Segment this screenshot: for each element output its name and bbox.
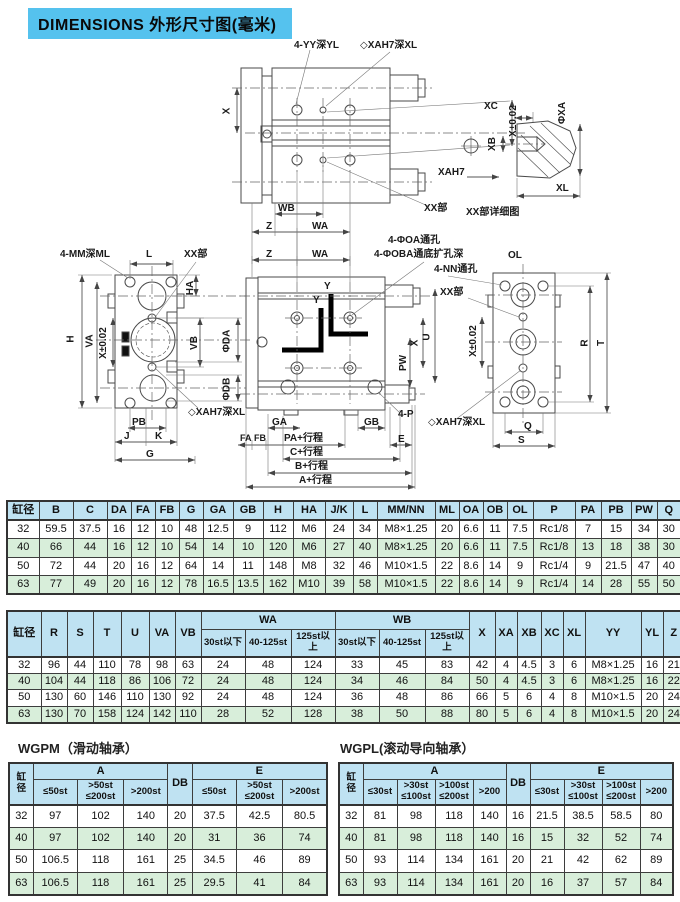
value-cell: 38	[631, 539, 657, 557]
col-header-group-e: E	[192, 763, 327, 780]
bore-cell: 32	[7, 657, 41, 674]
value-cell: 29.5	[192, 872, 236, 895]
value-cell: 39	[325, 575, 353, 594]
value-cell: 80	[640, 805, 673, 828]
value-cell: 118	[435, 828, 473, 850]
col-header-group-a: A	[363, 763, 506, 780]
value-cell: M6	[293, 539, 325, 557]
value-cell: 83	[425, 657, 469, 674]
value-cell: 32	[325, 557, 353, 575]
dim-label-xa: ΦXA	[558, 102, 568, 124]
value-cell: 78	[179, 575, 203, 594]
value-cell: 20	[641, 690, 663, 706]
value-cell: 28	[601, 575, 631, 594]
value-cell: 158	[93, 706, 121, 723]
value-cell: M8	[293, 557, 325, 575]
value-cell: 42	[564, 850, 602, 872]
value-cell: 6.6	[459, 520, 483, 539]
value-cell: 54	[179, 539, 203, 557]
value-cell: 64	[179, 557, 203, 575]
value-cell: 30	[657, 539, 680, 557]
value-cell: 20	[168, 805, 192, 828]
table-row: 4010444118861067224481243446845044.536M8…	[7, 674, 680, 690]
wgpm-title: WGPM（滑动轴承）	[18, 738, 138, 757]
value-cell: 7.5	[507, 520, 533, 539]
value-cell: 24	[201, 690, 245, 706]
value-cell: 34	[631, 520, 657, 539]
value-cell: 118	[77, 872, 123, 895]
value-cell: 11	[233, 557, 263, 575]
value-cell: 20	[506, 872, 530, 895]
dimension-drawing: 4-YY深YL ◇XAH7深XL X X±0.02 WB Z WA Z WA X…	[0, 36, 680, 498]
value-cell: 25	[168, 850, 192, 872]
value-cell: 16	[131, 575, 155, 594]
value-cell: 16	[506, 828, 530, 850]
col-header: DB	[506, 763, 530, 805]
value-cell: 45	[379, 657, 425, 674]
value-cell: 106.5	[33, 872, 77, 895]
table-header-row: 缸 径 A DB E	[339, 763, 673, 780]
col-header-group-e: E	[530, 763, 673, 780]
value-cell: 12	[131, 539, 155, 557]
section-label-y1: Y	[313, 296, 320, 306]
dim-label-mm: 4-MM深ML	[60, 250, 110, 260]
value-cell: 118	[435, 805, 473, 828]
dim-label-r: R	[581, 339, 591, 346]
col-header: S	[67, 611, 93, 657]
wgpl-table: 缸 径 A DB E ≤30st >30st ≤100st >100st ≤20…	[338, 762, 674, 896]
bore-cell: 50	[339, 850, 363, 872]
col-subheader: ≤30st	[363, 780, 397, 805]
value-cell: 134	[435, 872, 473, 895]
col-header: H	[263, 501, 293, 520]
value-cell: 66	[39, 539, 73, 557]
value-cell: 89	[640, 850, 673, 872]
value-cell: 46	[353, 557, 377, 575]
bore-cell: 63	[339, 872, 363, 895]
value-cell: 97	[33, 828, 77, 850]
col-subheader: ≤50st	[192, 780, 236, 805]
value-cell: M8×1.25	[377, 520, 435, 539]
value-cell: 161	[473, 850, 506, 872]
dim-label-xc: XC	[484, 102, 498, 112]
value-cell: 10	[155, 539, 179, 557]
value-cell: 4	[495, 674, 517, 690]
value-cell: 11	[483, 520, 507, 539]
value-cell: 84	[640, 872, 673, 895]
value-cell: 96	[41, 657, 67, 674]
value-cell: 3	[541, 674, 563, 690]
value-cell: 46	[379, 674, 425, 690]
value-cell: 47	[631, 557, 657, 575]
table-row: 406644161210541410120M62740M8×1.25206.61…	[7, 539, 680, 557]
value-cell: 6.6	[459, 539, 483, 557]
value-cell: 8	[563, 706, 585, 723]
table-row: 32971021402037.542.580.5	[9, 805, 327, 828]
bore-cell: 40	[339, 828, 363, 850]
dim-label-g: G	[146, 450, 154, 460]
value-cell: 130	[149, 690, 175, 706]
dim-label-xah7-left: ◇XAH7深XL	[188, 408, 245, 418]
col-header: YL	[641, 611, 663, 657]
dim-label-vb: VB	[190, 336, 200, 350]
value-cell: 124	[291, 657, 335, 674]
col-header: PB	[601, 501, 631, 520]
value-cell: 50	[657, 575, 680, 594]
value-cell: 142	[149, 706, 175, 723]
value-cell: 140	[473, 828, 506, 850]
value-cell: 24	[663, 690, 680, 706]
dim-label-q: Q	[524, 422, 532, 432]
col-header: 缸径	[7, 611, 41, 657]
table-row: 4081981181401615325274	[339, 828, 673, 850]
value-cell: 44	[67, 674, 93, 690]
table-row: 50931141341612021426289	[339, 850, 673, 872]
value-cell: 24	[201, 657, 245, 674]
value-cell: 16	[641, 674, 663, 690]
col-subheader: ≤30st	[530, 780, 564, 805]
dim-label-wa1: WA	[312, 222, 328, 232]
value-cell: 6	[517, 706, 541, 723]
value-cell: 140	[124, 828, 168, 850]
value-cell: 6	[517, 690, 541, 706]
value-cell: 77	[39, 575, 73, 594]
value-cell: 48	[245, 657, 291, 674]
value-cell: 44	[73, 557, 107, 575]
value-cell: 18	[601, 539, 631, 557]
value-cell: 114	[397, 850, 435, 872]
value-cell: 50	[379, 706, 425, 723]
value-cell: 41	[236, 872, 282, 895]
dim-label-x-top: X	[222, 108, 232, 115]
col-header: Q	[657, 501, 680, 520]
col-subheader: >200	[640, 780, 673, 805]
table-row: 5013060146110130922448124364886665648M10…	[7, 690, 680, 706]
value-cell: 27	[325, 539, 353, 557]
dim-label-s: S	[518, 436, 525, 446]
value-cell: 93	[363, 850, 397, 872]
value-cell: 130	[41, 706, 67, 723]
value-cell: 42	[469, 657, 495, 674]
bore-cell: 50	[7, 690, 41, 706]
value-cell: 37.5	[73, 520, 107, 539]
col-header: DB	[168, 763, 192, 805]
value-cell: 52	[245, 706, 291, 723]
bore-cell: 50	[9, 850, 33, 872]
col-header: P	[533, 501, 575, 520]
value-cell: 36	[236, 828, 282, 850]
value-cell: 70	[67, 706, 93, 723]
col-header: R	[41, 611, 67, 657]
dim-label-xah7-front: ◇XAH7深XL	[428, 418, 485, 428]
value-cell: 16	[107, 520, 131, 539]
dim-label-l: L	[146, 250, 152, 260]
col-header: PA	[575, 501, 601, 520]
value-cell: 44	[67, 657, 93, 674]
value-cell: 110	[121, 690, 149, 706]
dim-label-ha: HA	[186, 281, 196, 295]
value-cell: 4	[541, 706, 563, 723]
col-subheader: >200	[473, 780, 506, 805]
dim-label-va: VA	[86, 334, 96, 347]
value-cell: 13	[575, 539, 601, 557]
dim-label-fa: FA	[240, 434, 252, 443]
wgpl-title: WGPL(滚动导向轴承）	[340, 738, 474, 757]
col-header: ML	[435, 501, 459, 520]
value-cell: M6	[293, 520, 325, 539]
col-subheader: >200st	[283, 780, 327, 805]
page-title: DIMENSIONS 外形尺寸图(毫米)	[28, 8, 292, 39]
value-cell: 4.5	[517, 657, 541, 674]
dim-label-a-stroke: A+行程	[299, 476, 332, 486]
value-cell: 5	[495, 690, 517, 706]
col-header: YY	[585, 611, 641, 657]
bore-cell: 32	[339, 805, 363, 828]
value-cell: 72	[175, 674, 201, 690]
col-header: OA	[459, 501, 483, 520]
value-cell: M8×1.25	[377, 539, 435, 557]
value-cell: 162	[263, 575, 293, 594]
dim-label-xx-front: XX部	[440, 288, 463, 298]
col-header: L	[353, 501, 377, 520]
dim-label-nn: 4-NN通孔	[434, 265, 477, 275]
detail-caption: XX部详细图	[466, 208, 519, 218]
value-cell: 34.5	[192, 850, 236, 872]
value-cell: 10	[155, 520, 179, 539]
table-row: 63130701581241421102852128385088805648M1…	[7, 706, 680, 723]
value-cell: 55	[631, 575, 657, 594]
value-cell: 36	[335, 690, 379, 706]
value-cell: 78	[121, 657, 149, 674]
dim-label-oa: 4-ΦOA通孔	[388, 236, 440, 246]
value-cell: 16	[131, 557, 155, 575]
col-subheader: ≤50st	[33, 780, 77, 805]
col-header: 缸径	[7, 501, 39, 520]
value-cell: 81	[363, 828, 397, 850]
value-cell: 112	[263, 520, 293, 539]
technical-drawing	[0, 36, 680, 498]
value-cell: 49	[73, 575, 107, 594]
value-cell: 98	[397, 828, 435, 850]
value-cell: 44	[73, 539, 107, 557]
value-cell: 66	[469, 690, 495, 706]
dim-label-ol: OL	[508, 251, 522, 261]
value-cell: 33	[335, 657, 379, 674]
value-cell: 14	[575, 575, 601, 594]
value-cell: 25	[168, 872, 192, 895]
value-cell: M10×1.5	[585, 690, 641, 706]
value-cell: 9	[233, 520, 263, 539]
dim-label-pw: PW	[399, 355, 409, 371]
col-subheader: 125st以上	[425, 630, 469, 657]
value-cell: 80.5	[283, 805, 327, 828]
bore-cell: 63	[7, 575, 39, 594]
value-cell: 9	[507, 557, 533, 575]
table-row: 3259.537.51612104812.59112M62434M8×1.252…	[7, 520, 680, 539]
value-cell: 34	[335, 674, 379, 690]
value-cell: 48	[179, 520, 203, 539]
value-cell: 48	[245, 674, 291, 690]
dim-label-xx-left: XX部	[184, 250, 207, 260]
bore-cell: 32	[9, 805, 33, 828]
value-cell: 4	[541, 690, 563, 706]
value-cell: 58	[353, 575, 377, 594]
table-header-row: 缸径 R S T U VA VB WA WB X XA XB XC XL YY …	[7, 611, 680, 630]
value-cell: 74	[283, 828, 327, 850]
col-header: XB	[517, 611, 541, 657]
value-cell: M10	[293, 575, 325, 594]
value-cell: 114	[397, 872, 435, 895]
col-header: XC	[541, 611, 563, 657]
dim-label-xtol-right: X±0.02	[469, 325, 479, 357]
dim-label-x-front: X	[410, 340, 420, 347]
dim-label-da: ΦDA	[222, 330, 232, 353]
value-cell: 20	[506, 850, 530, 872]
value-cell: 31	[192, 828, 236, 850]
col-header: XL	[563, 611, 585, 657]
value-cell: 118	[93, 674, 121, 690]
value-cell: 161	[473, 872, 506, 895]
wgpm-table: 缸 径 A DB E ≤50st >50st ≤200st >200st ≤50…	[8, 762, 328, 896]
value-cell: 93	[363, 872, 397, 895]
value-cell: 38	[335, 706, 379, 723]
value-cell: 20	[435, 539, 459, 557]
value-cell: 42.5	[236, 805, 282, 828]
value-cell: Rc1/4	[533, 557, 575, 575]
col-subheader: 40-125st	[379, 630, 425, 657]
value-cell: Rc1/4	[533, 575, 575, 594]
col-header: C	[73, 501, 107, 520]
value-cell: 8.6	[459, 557, 483, 575]
dim-label-fb: FB	[254, 434, 266, 443]
bore-cell: 50	[7, 557, 39, 575]
dim-label-yy: 4-YY深YL	[294, 41, 339, 51]
value-cell: 7.5	[507, 539, 533, 557]
value-cell: 16	[506, 805, 530, 828]
dim-label-h: H	[67, 335, 77, 342]
value-cell: 102	[77, 828, 123, 850]
dim-label-u: U	[423, 333, 433, 340]
value-cell: 98	[397, 805, 435, 828]
col-header: 缸 径	[9, 763, 33, 805]
value-cell: M8×1.25	[585, 657, 641, 674]
bore-cell: 40	[7, 674, 41, 690]
value-cell: 22	[435, 575, 459, 594]
value-cell: 50	[469, 674, 495, 690]
value-cell: 128	[291, 706, 335, 723]
dim-label-xah7-pin: XAH7	[438, 168, 465, 178]
value-cell: 60	[67, 690, 93, 706]
value-cell: 13.5	[233, 575, 263, 594]
value-cell: 16	[107, 539, 131, 557]
value-cell: 37	[564, 872, 602, 895]
value-cell: 86	[425, 690, 469, 706]
value-cell: 32	[564, 828, 602, 850]
dim-label-c-stroke: C+行程	[290, 448, 323, 458]
dim-label-wb: WB	[278, 204, 295, 214]
value-cell: 11	[483, 539, 507, 557]
col-header: Z	[663, 611, 680, 657]
table-row: 507244201612641411148M83246M10×1.5228.61…	[7, 557, 680, 575]
col-subheader: 40-125st	[245, 630, 291, 657]
value-cell: 59.5	[39, 520, 73, 539]
section-label-y2: Y	[324, 282, 331, 292]
value-cell: 9	[507, 575, 533, 594]
col-subheader: >100st ≤200st	[602, 780, 640, 805]
col-header: G	[179, 501, 203, 520]
value-cell: 74	[640, 828, 673, 850]
value-cell: 97	[33, 805, 77, 828]
value-cell: 21	[530, 850, 564, 872]
col-header: J/K	[325, 501, 353, 520]
value-cell: 14	[483, 575, 507, 594]
value-cell: Rc1/8	[533, 520, 575, 539]
value-cell: 72	[39, 557, 73, 575]
table-header-row: 缸 径 A DB E	[9, 763, 327, 780]
value-cell: 134	[435, 850, 473, 872]
col-header: U	[121, 611, 149, 657]
dimensions-table-1: 缸径 B C DA FA FB G GA GB H HA J/K L MM/NN…	[6, 500, 680, 595]
dim-label-b-stroke: B+行程	[295, 462, 328, 472]
value-cell: 16	[530, 872, 564, 895]
table-header-row: 缸径 B C DA FA FB G GA GB H HA J/K L MM/NN…	[7, 501, 680, 520]
value-cell: 15	[601, 520, 631, 539]
value-cell: 24	[325, 520, 353, 539]
value-cell: 20	[435, 520, 459, 539]
dim-label-pb: PB	[132, 418, 146, 428]
value-cell: 146	[93, 690, 121, 706]
dim-label-j: J	[124, 432, 130, 442]
dim-label-xl: XL	[556, 184, 569, 194]
col-header: XA	[495, 611, 517, 657]
value-cell: 14	[483, 557, 507, 575]
value-cell: 21	[663, 657, 680, 674]
value-cell: 22	[663, 674, 680, 690]
value-cell: 12.5	[203, 520, 233, 539]
col-header: VA	[149, 611, 175, 657]
col-subheader: 125st以上	[291, 630, 335, 657]
value-cell: 9	[575, 557, 601, 575]
value-cell: 58.5	[602, 805, 640, 828]
col-subheader: >200st	[124, 780, 168, 805]
col-header: FB	[155, 501, 179, 520]
col-subheader: 30st以下	[201, 630, 245, 657]
value-cell: 106	[149, 674, 175, 690]
dim-label-xb: XB	[488, 137, 498, 151]
col-subheader: >30st ≤100st	[397, 780, 435, 805]
value-cell: 80	[469, 706, 495, 723]
value-cell: 48	[379, 690, 425, 706]
value-cell: 86	[121, 674, 149, 690]
value-cell: M8×1.25	[585, 674, 641, 690]
dim-label-k: K	[155, 432, 162, 442]
col-header: PW	[631, 501, 657, 520]
value-cell: 40	[353, 539, 377, 557]
table-row: 63106.51181612529.54184	[9, 872, 327, 895]
value-cell: 20	[107, 557, 131, 575]
col-subheader: >100st ≤200st	[435, 780, 473, 805]
col-header: T	[93, 611, 121, 657]
col-header: MM/NN	[377, 501, 435, 520]
dim-label-wa2: WA	[312, 250, 328, 260]
table-row: 409710214020313674	[9, 828, 327, 850]
dim-label-e: E	[398, 435, 405, 445]
table-row: 32964411078986324481243345834244.536M8×1…	[7, 657, 680, 674]
col-header: FA	[131, 501, 155, 520]
value-cell: 62	[602, 850, 640, 872]
dim-label-xtol-top: X±0.02	[509, 105, 519, 137]
value-cell: 140	[473, 805, 506, 828]
